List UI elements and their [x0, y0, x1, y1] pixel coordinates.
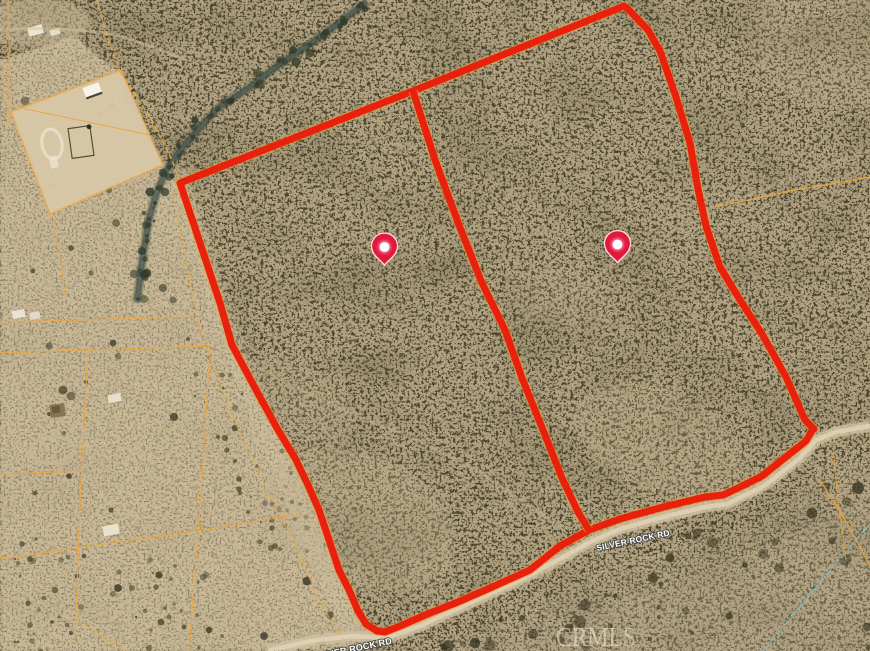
svg-text:CRMLS: CRMLS: [556, 622, 636, 651]
